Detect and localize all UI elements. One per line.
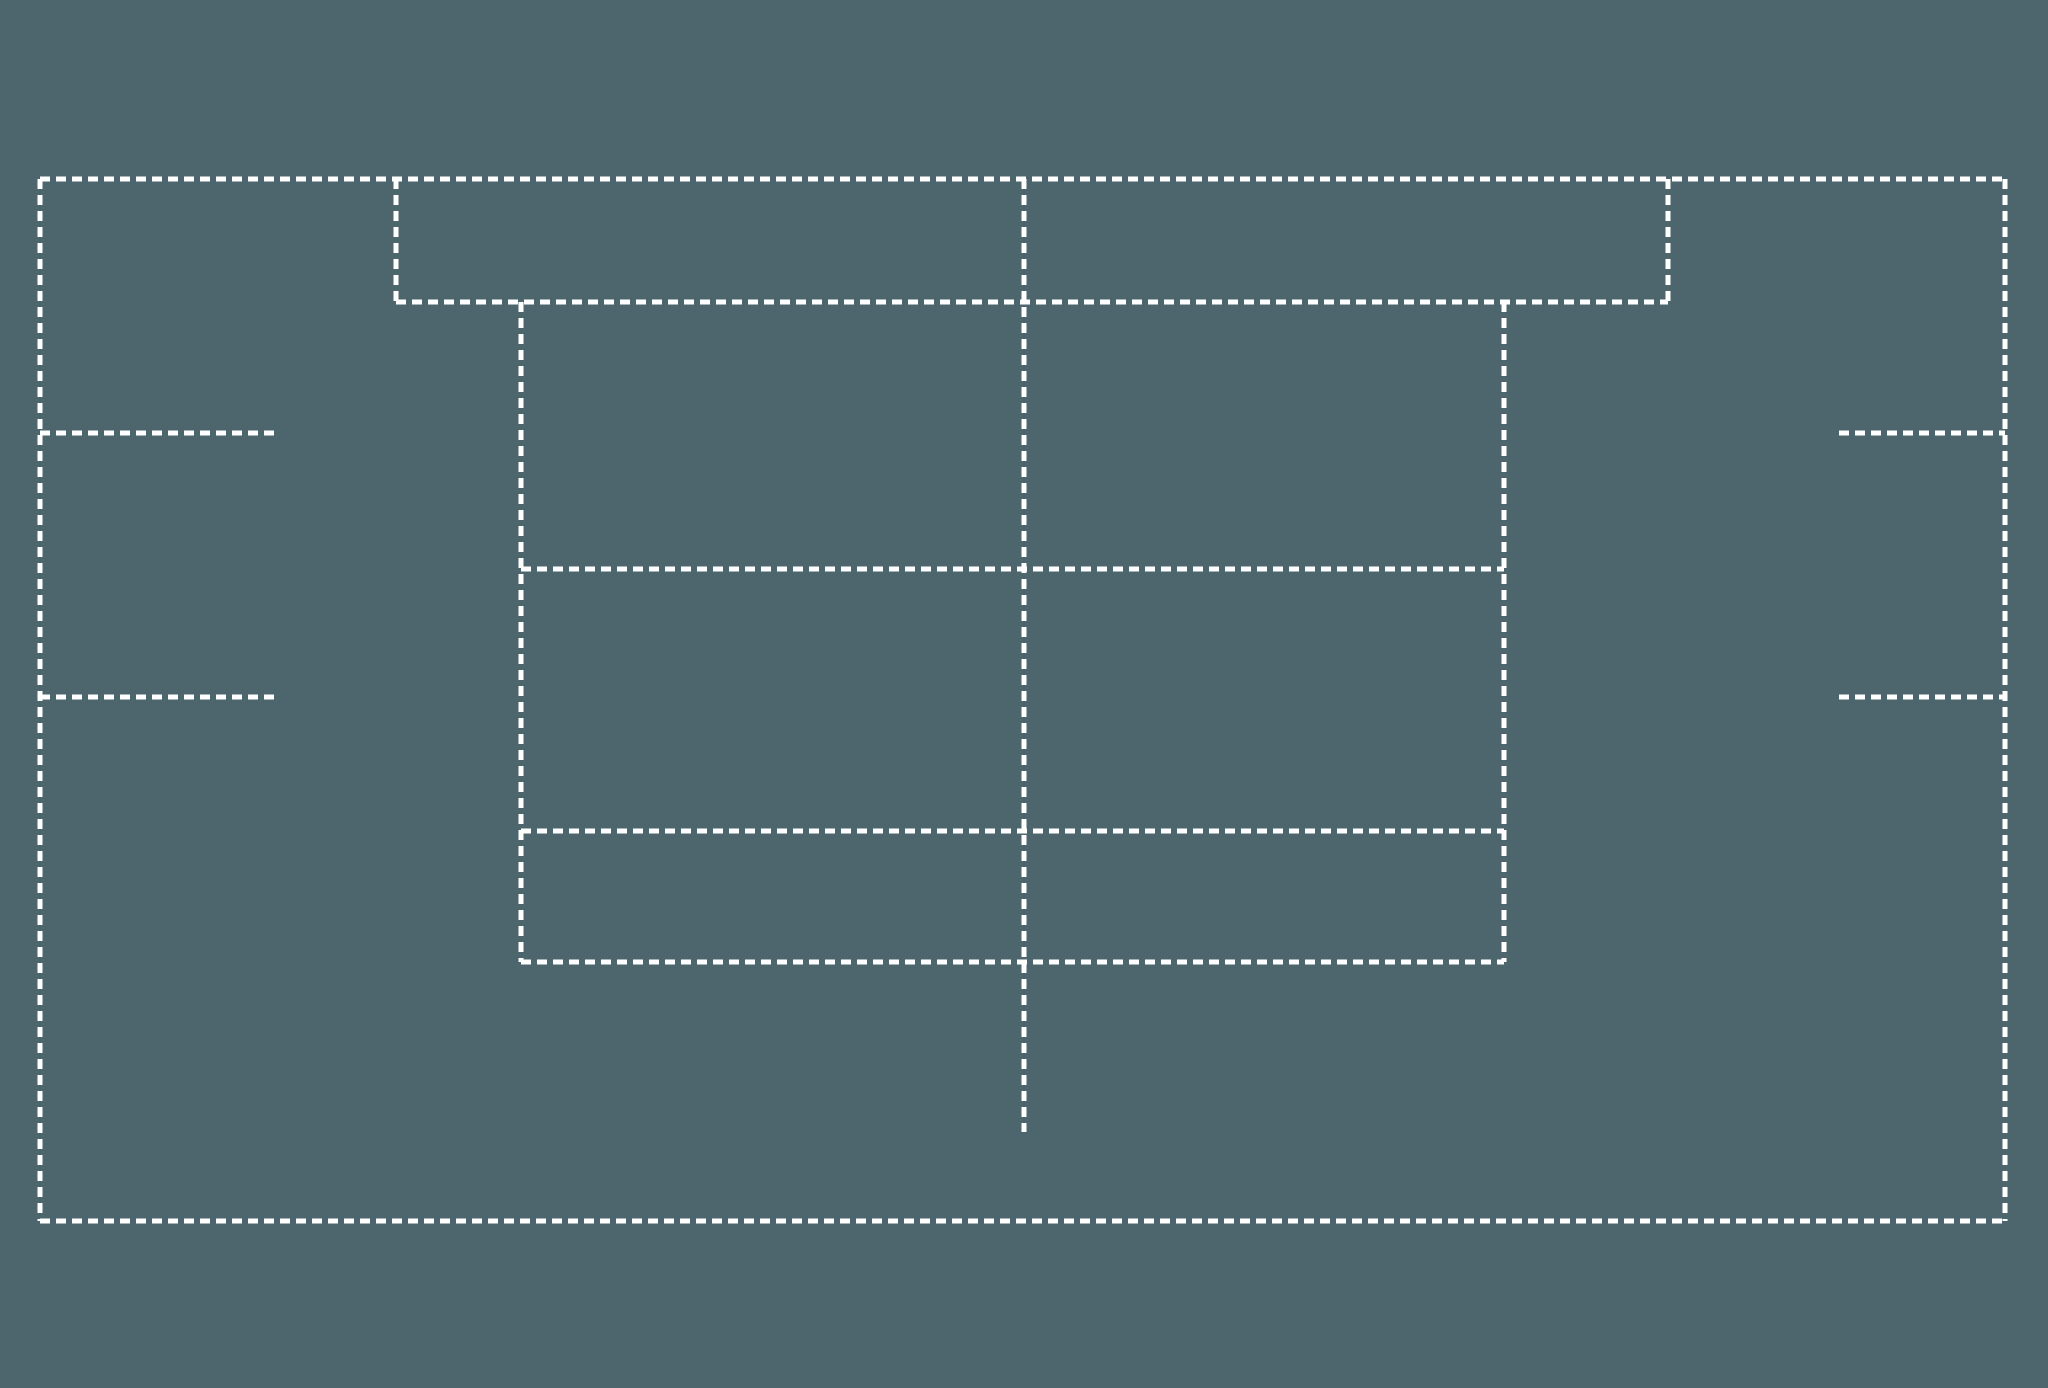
diagram-canvas <box>0 0 2048 1388</box>
dashed-wireframe-diagram <box>0 0 2048 1388</box>
